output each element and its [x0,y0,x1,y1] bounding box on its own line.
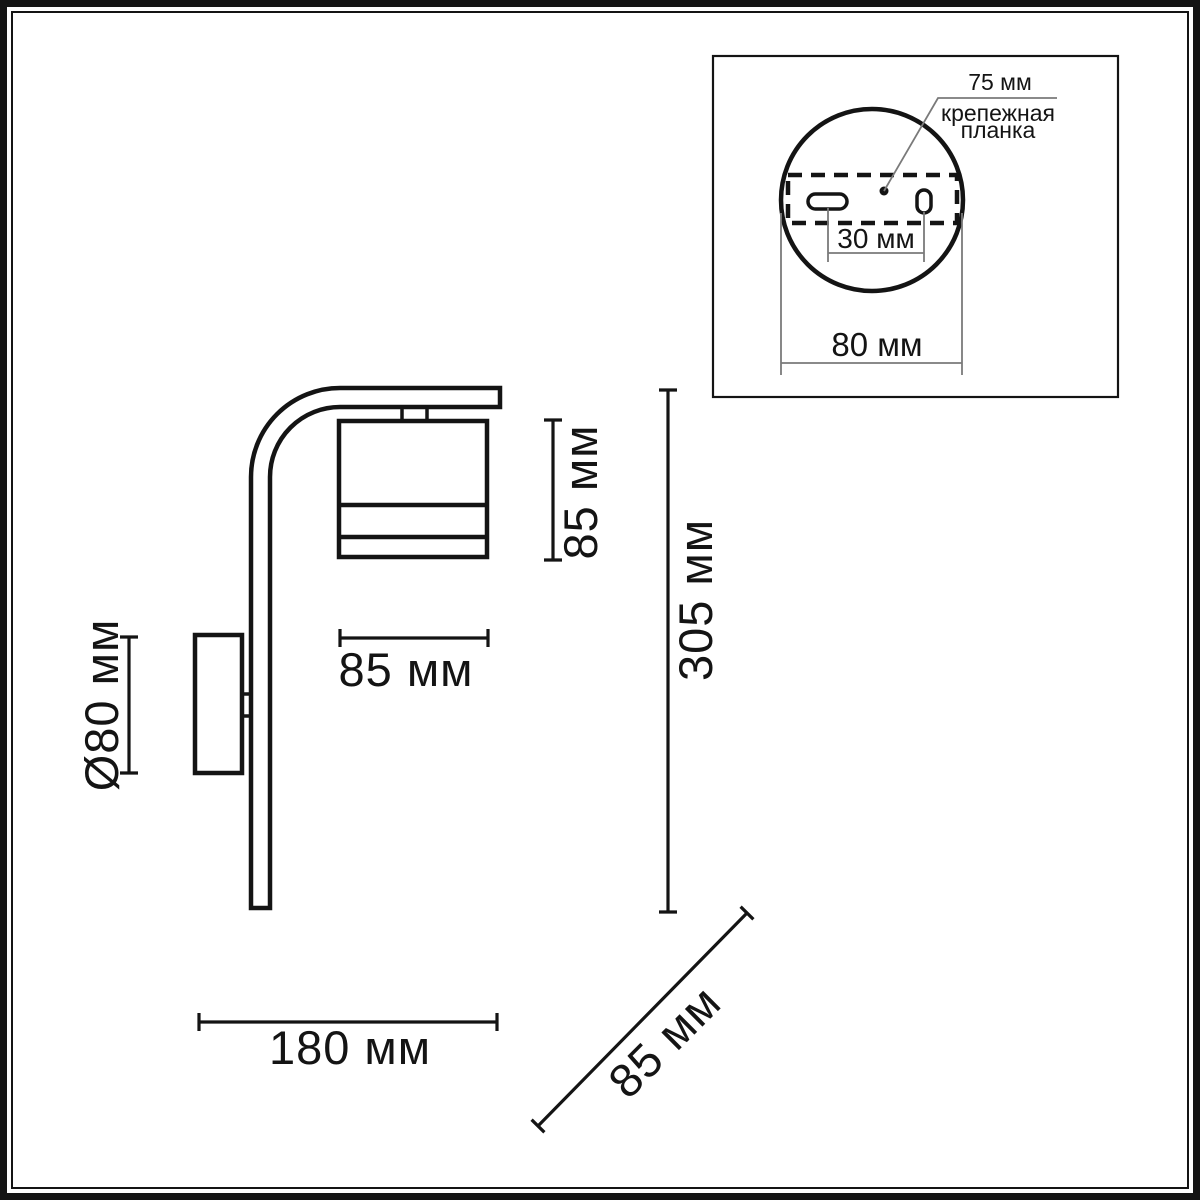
dim-total-height: 305 мм [659,390,722,912]
hole-spacing-label: 30 мм [837,223,914,254]
mounting-slot-right [917,190,931,213]
mounting-slot-left [808,194,847,209]
dim-depth-label: 85 мм [598,975,731,1108]
dim-shade-width: 85 мм [339,629,488,696]
dim-shade-width-label: 85 мм [339,643,474,696]
dim-total-width: 180 мм [199,1013,497,1074]
wall-sconce-dimension-drawing: 85 мм 305 мм 85 мм Ø80 мм 180 мм 85 мм [0,0,1200,1200]
dim-shade-height-label: 85 мм [554,425,607,560]
wall-base [195,635,242,773]
plate-width-label: 75 мм [968,69,1032,95]
plate-name-line2: планка [961,117,1036,143]
circle-diameter-label: 80 мм [831,326,922,363]
dim-base-diameter-label: Ø80 мм [75,619,128,792]
dim-base-diameter: Ø80 мм [75,619,138,792]
mounting-plate-inset: 75 мм крепежная планка 30 мм 80 мм [713,56,1118,397]
dim-total-width-label: 180 мм [269,1021,431,1074]
drawing-svg: 85 мм 305 мм 85 мм Ø80 мм 180 мм 85 мм [0,0,1200,1200]
dim-shade-height: 85 мм [544,420,607,560]
dim-depth: 85 мм [532,907,754,1133]
dim-total-height-label: 305 мм [669,519,722,681]
